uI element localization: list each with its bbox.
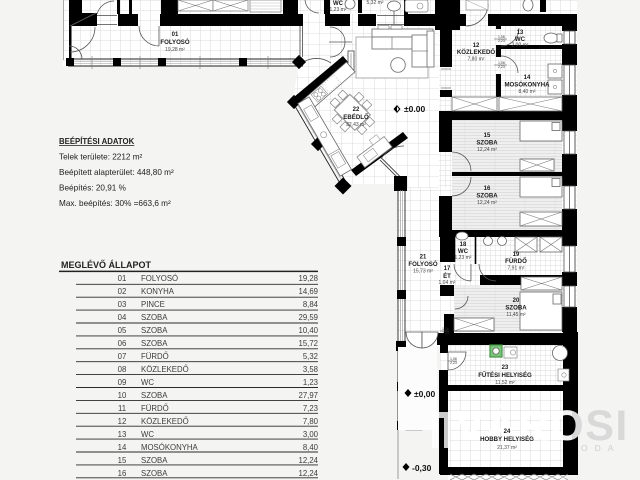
svg-text:FOLYOSÓ: FOLYOSÓ	[160, 38, 189, 46]
svg-text:14: 14	[524, 75, 531, 81]
svg-text:14: 14	[118, 443, 127, 452]
svg-text:Beépítés: 20,91 %: Beépítés: 20,91 %	[59, 184, 126, 193]
svg-text:32,43 m²: 32,43 m²	[346, 122, 366, 128]
svg-text:1,04 m²: 1,04 m²	[439, 280, 456, 286]
svg-text:HOBBY HELYISÉG: HOBBY HELYISÉG	[480, 435, 534, 443]
svg-text:01: 01	[172, 32, 179, 38]
svg-text:1,23 m²: 1,23 m²	[330, 7, 347, 13]
svg-text:7,23: 7,23	[303, 404, 318, 413]
svg-text:5,32: 5,32	[303, 352, 318, 361]
svg-text:3,00: 3,00	[303, 430, 319, 439]
svg-text:11,45 m²: 11,45 m²	[506, 312, 526, 318]
svg-text:FÜRDŐ: FÜRDŐ	[505, 258, 527, 265]
svg-text:SZOBA: SZOBA	[505, 305, 527, 312]
svg-text:SZOBA: SZOBA	[141, 456, 168, 465]
svg-text:12,24: 12,24	[298, 456, 318, 465]
svg-text:24: 24	[504, 429, 511, 435]
svg-text:SZOBA: SZOBA	[141, 391, 168, 400]
svg-text:15: 15	[118, 456, 127, 465]
svg-text:-0,30: -0,30	[412, 463, 432, 473]
svg-text:17: 17	[444, 266, 451, 272]
svg-text:2,00 m²: 2,00 m²	[512, 43, 529, 49]
svg-text:16: 16	[484, 186, 491, 192]
svg-text:SZOBA: SZOBA	[141, 339, 168, 348]
svg-text:19,28 m²: 19,28 m²	[165, 47, 185, 53]
svg-text:EBÉDLŐ: EBÉDLŐ	[343, 113, 369, 121]
svg-text:22: 22	[353, 107, 360, 113]
svg-text:1,23: 1,23	[303, 378, 318, 387]
svg-text:WC: WC	[141, 430, 154, 439]
svg-text:SZOBA: SZOBA	[141, 469, 168, 478]
svg-text:20: 20	[513, 298, 520, 304]
svg-text:FŰTÉSI HELYISÉG: FŰTÉSI HELYISÉG	[478, 371, 532, 379]
svg-text:BEÉPÍTÉSI ADATOK: BEÉPÍTÉSI ADATOK	[59, 137, 135, 146]
svg-text:1,23 m²: 1,23 m²	[455, 255, 472, 261]
svg-text:14,69: 14,69	[298, 287, 318, 296]
svg-text:8,84: 8,84	[303, 300, 319, 309]
svg-text:15,73 m²: 15,73 m²	[413, 269, 433, 275]
svg-text:FOLYOSÓ: FOLYOSÓ	[408, 260, 437, 268]
svg-text:MOSÓKONYHA: MOSÓKONYHA	[504, 81, 550, 89]
svg-text:WC: WC	[141, 378, 154, 387]
svg-text:2,23: 2,23	[498, 39, 505, 43]
svg-text:12: 12	[118, 417, 127, 426]
svg-text:16: 16	[118, 469, 127, 478]
svg-text:SZOBA: SZOBA	[141, 313, 168, 322]
svg-text:5,32 m²: 5,32 m²	[367, 0, 384, 6]
svg-text:Max. beépítés: 30% =663,6 m²: Max. beépítés: 30% =663,6 m²	[59, 199, 171, 208]
svg-text:10: 10	[118, 391, 127, 400]
svg-text:8,40: 8,40	[303, 443, 319, 452]
svg-text:19,28: 19,28	[298, 274, 318, 283]
svg-text:FÜRDŐ: FÜRDŐ	[141, 352, 169, 361]
svg-text:MEGLÉVŐ ÁLLAPOT: MEGLÉVŐ ÁLLAPOT	[61, 259, 152, 270]
svg-text:7,80: 7,80	[303, 417, 319, 426]
svg-text:7,80 m²: 7,80 m²	[468, 57, 485, 63]
svg-text:KÖZLEKEDŐ: KÖZLEKEDŐ	[141, 417, 189, 426]
svg-text:SZOBA: SZOBA	[141, 326, 168, 335]
svg-text:08: 08	[118, 365, 127, 374]
svg-text:02: 02	[118, 287, 127, 296]
svg-text:FÜRDŐ: FÜRDŐ	[141, 404, 169, 413]
svg-text:±0,00: ±0,00	[414, 389, 435, 399]
svg-text:21: 21	[420, 255, 427, 261]
svg-text:15,72: 15,72	[298, 339, 318, 348]
svg-text:06: 06	[118, 339, 127, 348]
svg-text:7,91 m²: 7,91 m²	[508, 266, 525, 272]
svg-text:ODA: ODA	[581, 443, 620, 453]
svg-text:8,40 m²: 8,40 m²	[519, 89, 536, 95]
svg-text:KÖZLEKEDŐ: KÖZLEKEDŐ	[141, 365, 189, 374]
svg-text:KÖZLEKEDŐ: KÖZLEKEDŐ	[457, 49, 496, 56]
svg-text:ÉT: ÉT	[443, 272, 451, 280]
svg-text:±0.00: ±0.00	[404, 104, 425, 114]
svg-text:KONYHA: KONYHA	[141, 287, 175, 296]
svg-text:Telek területe: 2212 m²: Telek területe: 2212 m²	[59, 153, 143, 162]
svg-text:11: 11	[118, 404, 126, 413]
svg-text:3,58: 3,58	[303, 365, 318, 374]
svg-text:29,59: 29,59	[298, 313, 318, 322]
svg-text:27,97: 27,97	[298, 391, 318, 400]
svg-text:Beépített alapterület: 448,80: Beépített alapterület: 448,80 m²	[59, 168, 174, 177]
svg-text:01: 01	[118, 274, 127, 283]
svg-text:11,52 m²: 11,52 m²	[495, 380, 515, 386]
svg-text:05: 05	[118, 326, 127, 335]
svg-text:21,37 m²: 21,37 m²	[497, 445, 517, 451]
svg-text:07: 07	[118, 352, 127, 361]
svg-text:10,40: 10,40	[298, 326, 318, 335]
svg-text:2,23: 2,23	[498, 65, 505, 69]
svg-text:2,23: 2,23	[450, 361, 457, 365]
svg-text:09: 09	[118, 378, 127, 387]
svg-text:SZOBA: SZOBA	[476, 140, 498, 147]
svg-text:12,24 m²: 12,24 m²	[477, 147, 497, 153]
svg-text:PINCE: PINCE	[141, 300, 165, 309]
svg-text:15: 15	[484, 133, 491, 139]
svg-text:23: 23	[502, 365, 509, 371]
svg-text:04: 04	[118, 313, 127, 322]
svg-text:2,23: 2,23	[442, 331, 449, 335]
svg-text:12,24 m²: 12,24 m²	[477, 200, 497, 206]
svg-text:FOLYOSÓ: FOLYOSÓ	[141, 274, 178, 283]
svg-text:SZOBA: SZOBA	[476, 193, 498, 200]
svg-text:13: 13	[118, 430, 127, 439]
svg-text:03: 03	[118, 300, 127, 309]
svg-text:12,24: 12,24	[298, 469, 318, 478]
svg-text:MOSÓKONYHA: MOSÓKONYHA	[141, 443, 199, 452]
svg-text:WC: WC	[458, 248, 469, 255]
